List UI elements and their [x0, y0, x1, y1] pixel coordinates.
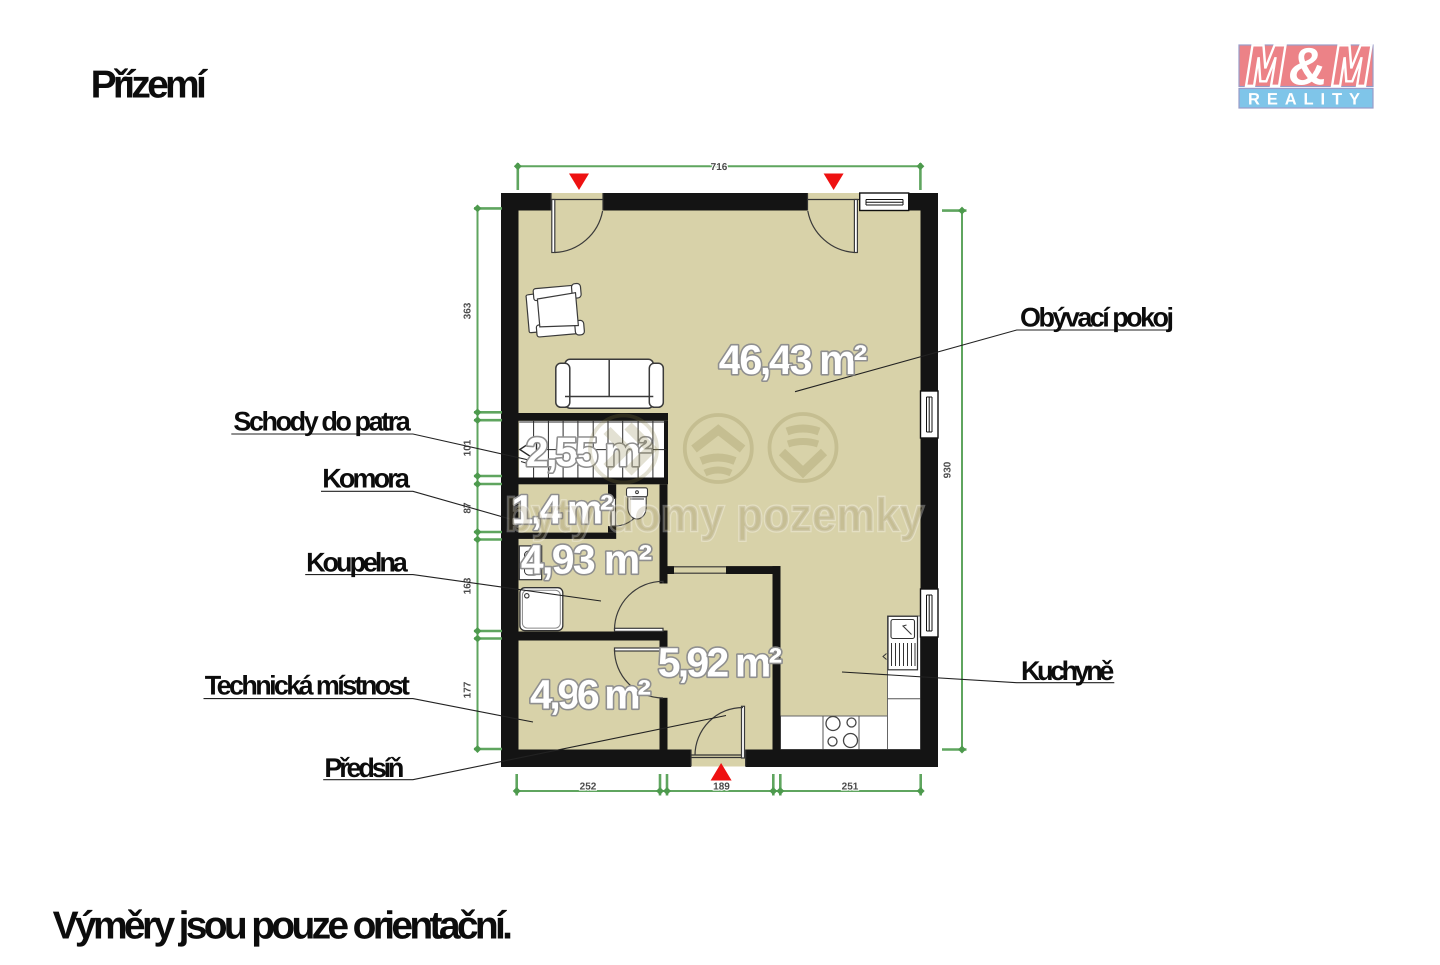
- svg-text:189: 189: [713, 782, 730, 793]
- svg-text:930: 930: [943, 461, 954, 478]
- svg-text:Předsíň: Předsíň: [324, 753, 404, 783]
- svg-text:252: 252: [580, 782, 597, 793]
- svg-text:163: 163: [463, 577, 474, 594]
- svg-text:46,43 m²: 46,43 m²: [719, 336, 868, 383]
- svg-text:363: 363: [463, 302, 474, 319]
- svg-text:Koupelna: Koupelna: [306, 548, 409, 578]
- svg-text:Schody do patra: Schody do patra: [233, 407, 411, 437]
- svg-text:177: 177: [463, 681, 474, 698]
- svg-text:Komora: Komora: [322, 463, 411, 493]
- svg-text:4,93 m²: 4,93 m²: [521, 537, 652, 583]
- svg-text:Kuchyně: Kuchyně: [1021, 656, 1114, 686]
- svg-text:Technická místnost: Technická místnost: [205, 670, 410, 700]
- svg-text:&: &: [1286, 38, 1329, 97]
- svg-text:Obývací pokoj: Obývací pokoj: [1020, 303, 1174, 333]
- svg-text:Výměry jsou pouze orientační.: Výměry jsou pouze orientační.: [53, 905, 513, 948]
- svg-text:5,92 m²: 5,92 m²: [658, 640, 782, 686]
- svg-text:716: 716: [711, 162, 728, 173]
- svg-text:byty domy pozemky: byty domy pozemky: [505, 488, 924, 541]
- svg-text:4,96 m²: 4,96 m²: [530, 672, 651, 718]
- svg-text:251: 251: [842, 782, 859, 793]
- svg-text:Přízemí: Přízemí: [91, 63, 208, 106]
